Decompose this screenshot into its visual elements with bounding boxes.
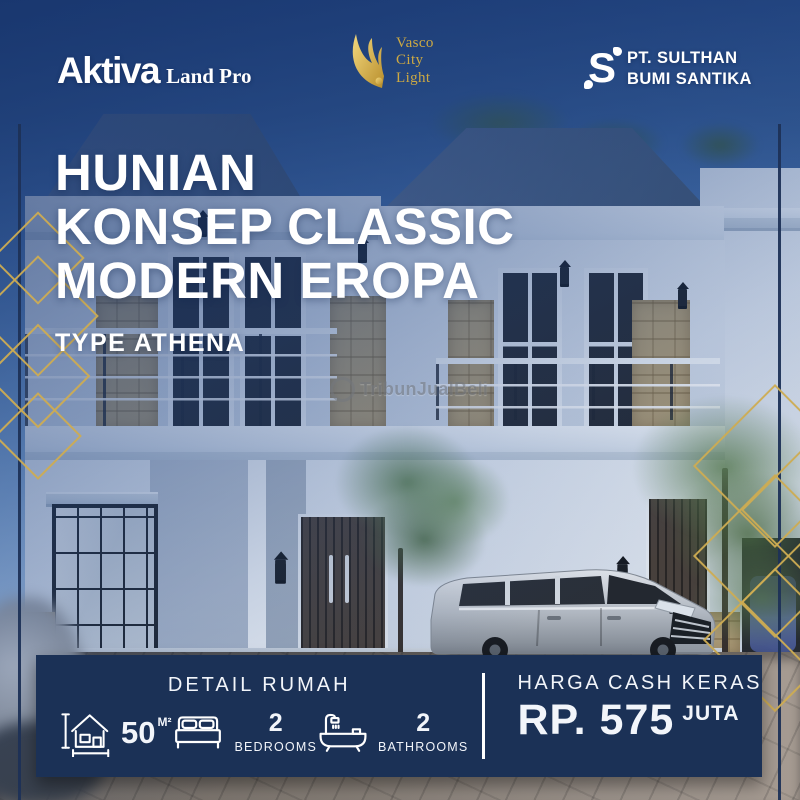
price-amount: RP. 575 — [517, 699, 674, 742]
aktiva-suffix: Land Pro — [166, 64, 251, 89]
area-item: 50 M² — [60, 707, 171, 757]
house-type-subtitle: TYPE ATHENA — [55, 329, 695, 358]
headline-line-1: HUNIAN — [55, 146, 695, 200]
bathtub-icon — [317, 710, 369, 754]
bedrooms-text: 2 BEDROOMS — [234, 710, 317, 753]
bathrooms-label: BATHROOMS — [378, 741, 468, 754]
watermark-text: TribunJualBeli — [360, 379, 488, 400]
headline-line-3: MODERN EROPA — [55, 254, 695, 308]
headline-line-2: KONSEP CLASSIC — [55, 200, 695, 254]
sulthan-s-mark-icon: S — [588, 46, 618, 92]
vasco-line: Light — [396, 70, 434, 87]
logo-aktiva-land-pro: Aktiva Land Pro — [57, 50, 251, 92]
logo-vasco-city-light: Vasco City Light — [346, 30, 434, 92]
tree-foliage — [400, 455, 510, 547]
detail-items: 50 M² — [36, 697, 482, 757]
headline-block: HUNIAN KONSEP CLASSIC MODERN EROPA TYPE … — [55, 146, 695, 358]
watermark-circle-icon — [330, 377, 355, 402]
aktiva-wordmark: Aktiva — [57, 50, 159, 92]
detail-section: DETAIL RUMAH 50 — [36, 655, 482, 777]
vasco-wordmark: Vasco City Light — [396, 35, 434, 87]
bedrooms-item: 2 BEDROOMS — [171, 710, 317, 753]
price-row: RP. 575 JUTA — [517, 699, 762, 742]
bedrooms-label: BEDROOMS — [234, 741, 317, 754]
price-section: HARGA CASH KERAS RP. 575 JUTA — [485, 655, 762, 777]
logo-pt-sulthan-bumi-santika: S PT. SULTHAN BUMI SANTIKA — [588, 46, 752, 92]
price-label: HARGA CASH KERAS — [517, 672, 762, 695]
detail-title: DETAIL RUMAH — [36, 674, 482, 697]
bathrooms-text: 2 BATHROOMS — [378, 710, 468, 753]
area-value-wrap: 50 M² — [121, 717, 171, 748]
sulthan-line: BUMI SANTIKA — [627, 69, 752, 90]
silver-minivan — [418, 546, 730, 666]
wing-icon — [346, 30, 390, 92]
info-bar: DETAIL RUMAH 50 — [36, 655, 762, 777]
bed-icon — [171, 712, 225, 752]
sulthan-line: PT. SULTHAN — [627, 48, 752, 69]
mark-dot — [584, 80, 593, 89]
bathrooms-value: 2 — [416, 710, 430, 736]
mark-dot — [613, 47, 622, 56]
door-handle — [329, 555, 333, 603]
bathrooms-item: 2 BATHROOMS — [317, 710, 468, 754]
porch-column — [248, 460, 266, 658]
door-handle — [345, 555, 349, 603]
vasco-line: City — [396, 52, 434, 69]
wall-lantern — [273, 551, 289, 582]
porch-shadow — [150, 460, 250, 658]
area-unit: M² — [157, 715, 171, 729]
sulthan-wordmark: PT. SULTHAN BUMI SANTIKA — [627, 48, 752, 91]
vasco-line: Vasco — [396, 35, 434, 52]
area-value: 50 — [121, 717, 155, 748]
bedrooms-value: 2 — [269, 710, 283, 736]
property-poster: TribunJualBeli Aktiva Land Pro Vasco Cit… — [0, 0, 800, 800]
site-watermark: TribunJualBeli — [330, 377, 488, 402]
price-unit: JUTA — [682, 702, 739, 726]
house-measure-icon — [60, 707, 112, 757]
